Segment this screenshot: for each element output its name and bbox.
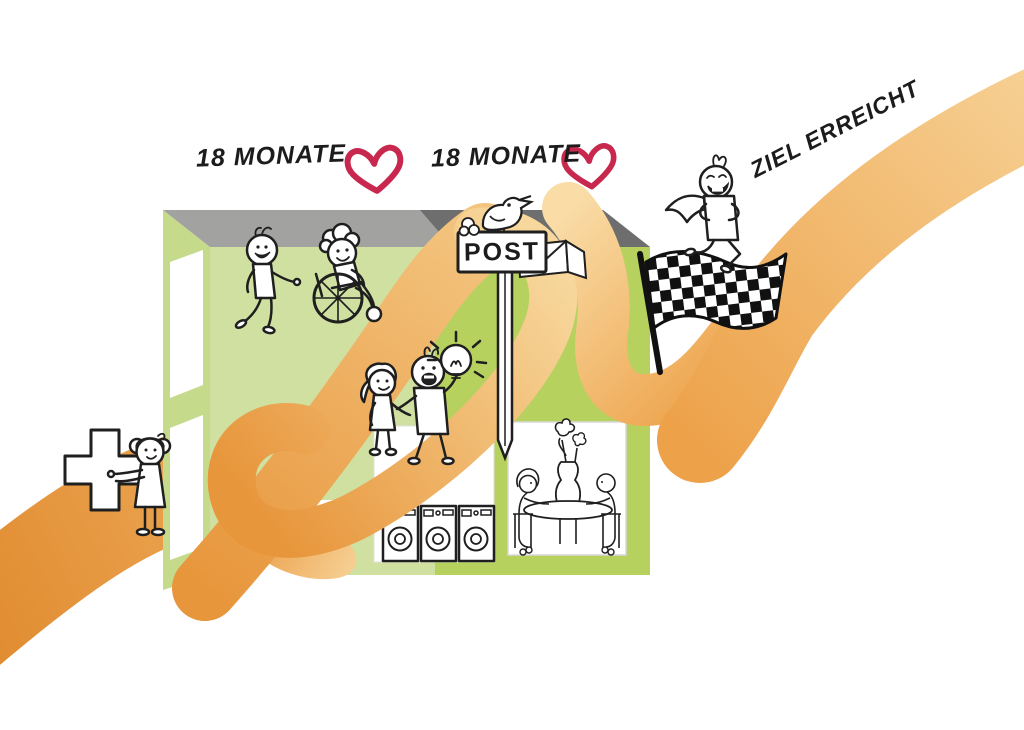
table xyxy=(524,501,612,519)
side-window-lower xyxy=(170,415,203,560)
milestone-label-1: 18 MONATE xyxy=(196,139,347,173)
heart-icon xyxy=(346,147,403,194)
dining-window xyxy=(508,419,626,555)
illustration-stage: 18 MONATE 18 MONATE ZIEL ERREICHT POST xyxy=(0,0,1024,730)
milestone-label-2: 18 MONATE xyxy=(431,139,582,173)
flower xyxy=(573,433,586,446)
washing-machine xyxy=(459,506,494,561)
post-sign-label: POST xyxy=(460,237,544,267)
side-window-upper xyxy=(170,250,203,398)
cape xyxy=(666,196,705,222)
washing-machine xyxy=(421,506,456,561)
